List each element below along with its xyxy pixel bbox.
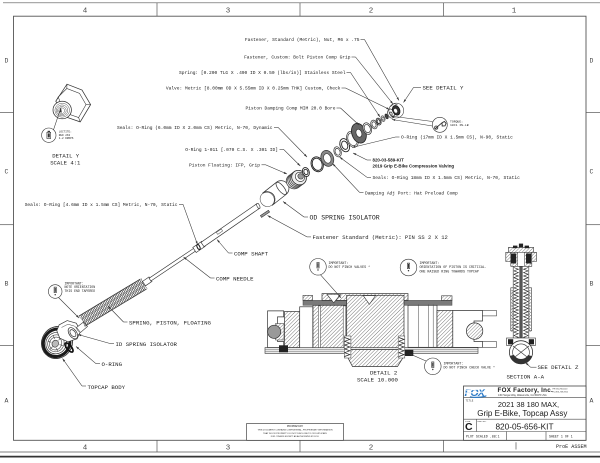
svg-text:Damping Adj Port: Hat Preload: Damping Adj Port: Hat Preload Comp	[365, 190, 458, 196]
svg-text:C: C	[5, 169, 9, 176]
svg-text:C: C	[465, 421, 473, 433]
svg-text:O-Ring (17mm ID X 1.5mm CS), N: O-Ring (17mm ID X 1.5mm CS), N-90, Stati…	[401, 135, 513, 141]
svg-text:SPRING, PISTON, FLOATING: SPRING, PISTON, FLOATING	[129, 320, 212, 327]
svg-text:4: 4	[83, 8, 88, 16]
svg-text:Seals: O-Ring 18mm ID X 1.5mm: Seals: O-Ring 18mm ID X 1.5mm CS) Metric…	[373, 175, 521, 181]
svg-text:2021 38 180 MAX,: 2021 38 180 MAX,	[498, 400, 559, 409]
svg-text:SEE DETAIL Y: SEE DETAIL Y	[423, 84, 465, 91]
svg-text:A: A	[590, 398, 594, 405]
svg-text:THIS DOCUMENT CONTAINS CONFIDE: THIS DOCUMENT CONTAINS CONFIDENTIAL, PRO…	[257, 429, 333, 432]
svg-text:ProE ASSEM: ProE ASSEM	[556, 444, 587, 450]
svg-text:THIS END TAPERED: THIS END TAPERED	[65, 289, 96, 293]
svg-text:130 Hangar Way, Watsonville, C: 130 Hangar Way, Watsonville, CA 95076 US…	[498, 394, 547, 397]
svg-text:O-RING: O-RING	[102, 361, 123, 368]
svg-text:OD SPRING ISOLATOR: OD SPRING ISOLATOR	[310, 215, 380, 222]
svg-text:820-03-589-KIT: 820-03-589-KIT	[373, 157, 405, 162]
svg-text:Valve: Metric [8.00mm OD X 5.5: Valve: Metric [8.00mm OD X 5.55mm ID X 0…	[166, 86, 341, 92]
svg-text:DO NOT PINCH VALVES *: DO NOT PINCH VALVES *	[329, 265, 371, 269]
svg-text:SCALE 10.000: SCALE 10.000	[357, 376, 399, 383]
svg-text:Fax 831-768-9312: Fax 831-768-9312	[553, 391, 568, 393]
svg-text:Spring: [0.200 TLG X .490 ID X: Spring: [0.200 TLG X .490 ID X 0.50 (lbs…	[179, 70, 346, 76]
svg-text:Fastener, Standard (Metric), N: Fastener, Standard (Metric), Nut, M6 x .…	[245, 37, 360, 43]
svg-text:COMP NEEDLE: COMP NEEDLE	[216, 276, 254, 283]
svg-text:Piston Floating: IFP, Grip: Piston Floating: IFP, Grip	[189, 162, 260, 168]
svg-text:DETAIL Y: DETAIL Y	[52, 153, 79, 160]
svg-text:D: D	[5, 58, 9, 65]
svg-text:Seals: O-Ring (6.0mm ID X 2.0m: Seals: O-Ring (6.0mm ID X 2.0mm CS) Metr…	[117, 125, 273, 131]
svg-text:FOR OTHERS EXCEPT AS AUTHORIZE: FOR OTHERS EXCEPT AS AUTHORIZED BY FOX.	[271, 435, 320, 438]
svg-text:SECTION A-A: SECTION A-A	[507, 374, 545, 381]
svg-text:3: 3	[226, 445, 231, 453]
svg-text:3: 3	[226, 8, 231, 16]
svg-text:DWG.NO.: DWG.NO.	[478, 420, 487, 423]
svg-text:1: 1	[512, 8, 517, 16]
svg-text:Piston Damping Comp MIM 20.0 B: Piston Damping Comp MIM 20.0 Bore	[245, 106, 335, 112]
svg-text:C: C	[590, 169, 594, 176]
svg-text:ID SPRING ISOLATOR: ID SPRING ISOLATOR	[116, 341, 178, 348]
svg-text:10±1 IN-LB: 10±1 IN-LB	[450, 123, 469, 127]
svg-text:ONE RAISED RING TOWARDS TOPCAP: ONE RAISED RING TOWARDS TOPCAP	[420, 269, 479, 273]
svg-text:SEE DETAIL Z: SEE DETAIL Z	[538, 364, 580, 371]
svg-text:2019 Grip E-Bike Compression V: 2019 Grip E-Bike Compression Valving	[373, 164, 455, 169]
svg-text:1-2 DROPS: 1-2 DROPS	[59, 137, 74, 140]
svg-text:SCALE 4:1: SCALE 4:1	[50, 160, 81, 167]
svg-text:DO NOT PINCH CHECK VALVE *: DO NOT PINCH CHECK VALVE *	[444, 366, 495, 370]
svg-text:D: D	[590, 58, 594, 65]
svg-text:B: B	[5, 281, 9, 288]
svg-text:A: A	[5, 398, 9, 405]
svg-text:SHEET 1 OF 1: SHEET 1 OF 1	[549, 435, 573, 439]
svg-text:B: B	[590, 281, 594, 288]
svg-text:Fastener Standard (Metric): PI: Fastener Standard (Metric): PIN SS 2 X 1…	[313, 234, 448, 241]
svg-text:2: 2	[369, 445, 374, 453]
svg-text:THAT IS FOX PROPERTY. DO NOT: THAT IS FOX PROPERTY. DO NOT DISCLOSE TO…	[263, 432, 327, 435]
svg-text:TOPCAP BODY: TOPCAP BODY	[88, 384, 126, 391]
svg-text:Seals: O-Ring [4.6mm ID x 1.5m: Seals: O-Ring [4.6mm ID x 1.5mm CS] Metr…	[25, 202, 178, 208]
svg-text:Fastener, Custom: Bolt Piston: Fastener, Custom: Bolt Piston Comp Grip	[244, 55, 351, 61]
svg-text:O-Ring 1-011 [.070 C.S. X .301: O-Ring 1-011 [.070 C.S. X .301 ID]	[185, 147, 278, 153]
svg-text:820-05-656-KIT: 820-05-656-KIT	[495, 422, 553, 432]
svg-text:DETAIL 2: DETAIL 2	[370, 369, 398, 376]
svg-text:TITLE: TITLE	[466, 400, 474, 403]
svg-text:2: 2	[369, 8, 374, 16]
svg-text:PROPRIETARY: PROPRIETARY	[287, 425, 304, 428]
svg-text:Grip E-Bike, Topcap Assy: Grip E-Bike, Topcap Assy	[477, 409, 567, 418]
svg-text:4: 4	[83, 445, 88, 453]
svg-text:PLOT SCALED .88:1: PLOT SCALED .88:1	[466, 435, 500, 439]
svg-text:COMP SHAFT: COMP SHAFT	[234, 251, 269, 258]
